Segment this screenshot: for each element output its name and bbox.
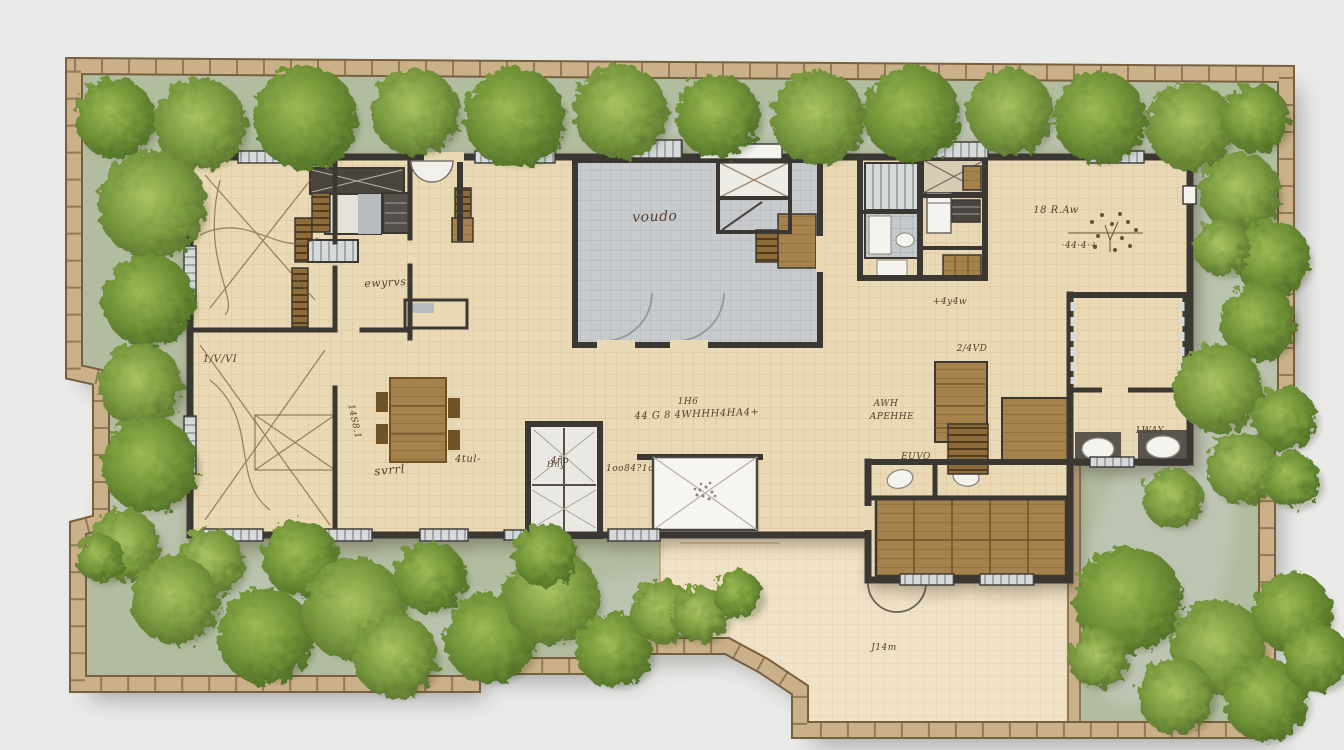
annotation-label: J14m (869, 643, 897, 653)
white-counter (877, 260, 907, 276)
bed (927, 193, 951, 233)
tree (771, 71, 865, 165)
chair-4 (448, 430, 460, 450)
tree (1138, 658, 1214, 734)
annotation-label: 2/4VD (956, 344, 988, 354)
annotation-label: ewyrvst (364, 275, 412, 290)
tree (353, 614, 437, 698)
annotation-label: ·44·4·+ (1062, 241, 1099, 251)
tub-right (1146, 436, 1180, 458)
gray-room-wood-landing (778, 214, 816, 268)
tree (714, 570, 762, 618)
tree (1221, 84, 1289, 152)
vestibule (528, 424, 600, 536)
tree (967, 69, 1053, 155)
chair-3 (448, 398, 460, 418)
annotation-label: voudo (632, 208, 678, 226)
tree (1142, 468, 1202, 528)
annotation-label: 18 R.Aw (1033, 205, 1078, 216)
tree (1174, 344, 1262, 432)
patio-square (640, 457, 760, 530)
tree (102, 254, 194, 346)
tree (1054, 72, 1146, 164)
annotation-label: Hny (546, 460, 565, 469)
shower-tray (869, 216, 891, 254)
tree (76, 534, 124, 582)
closet-room-gray-part (358, 194, 381, 234)
annotation-label: 1oo84?1o (606, 464, 654, 474)
tree (98, 151, 206, 259)
annotation-label: LWAY (1135, 426, 1165, 436)
tree (864, 66, 960, 162)
annotation-label: 4tul- (454, 454, 481, 465)
tree (1194, 220, 1250, 276)
site-floor-plan-canvas: voudo18 R.Aw·44·4·+ewyrvst1/V/VI1H644 G … (0, 0, 1344, 750)
tree (394, 541, 466, 613)
bookshelf (952, 200, 980, 222)
annotation-label: EUVO (900, 452, 931, 462)
dresser (943, 255, 981, 276)
tree (1200, 152, 1280, 232)
chair-1 (376, 392, 388, 412)
cluster-wood-box (963, 166, 981, 190)
tree (75, 78, 155, 158)
balcony-deck (1002, 398, 1068, 460)
toilet-small (896, 233, 914, 247)
tree (465, 68, 565, 168)
tree (102, 417, 198, 513)
tree (1264, 452, 1320, 508)
annotation-label: 1/V/VI (203, 354, 238, 365)
tree (217, 588, 313, 684)
annotation-label: AWH (873, 399, 899, 409)
tree (1146, 82, 1234, 170)
tree (676, 74, 760, 158)
annotation-label: +4y4w (933, 297, 967, 307)
stairs-3 (312, 193, 330, 232)
gray-room-stairs (756, 230, 778, 262)
annotation-label: 1H6 (678, 397, 699, 407)
cluster-bath-top (865, 163, 918, 210)
kitchen-counter (876, 498, 1066, 576)
tree (513, 523, 577, 587)
chair-2 (376, 424, 388, 444)
tree (573, 65, 667, 159)
tree (371, 68, 459, 156)
tree (253, 66, 357, 170)
annotation-label: svrrl (374, 462, 406, 479)
tree (98, 343, 182, 427)
annotation-label: APEHHE (869, 412, 914, 422)
pantry-shelf (948, 424, 988, 474)
tree (131, 556, 219, 644)
tree (1068, 628, 1128, 688)
dining-table (390, 378, 446, 462)
